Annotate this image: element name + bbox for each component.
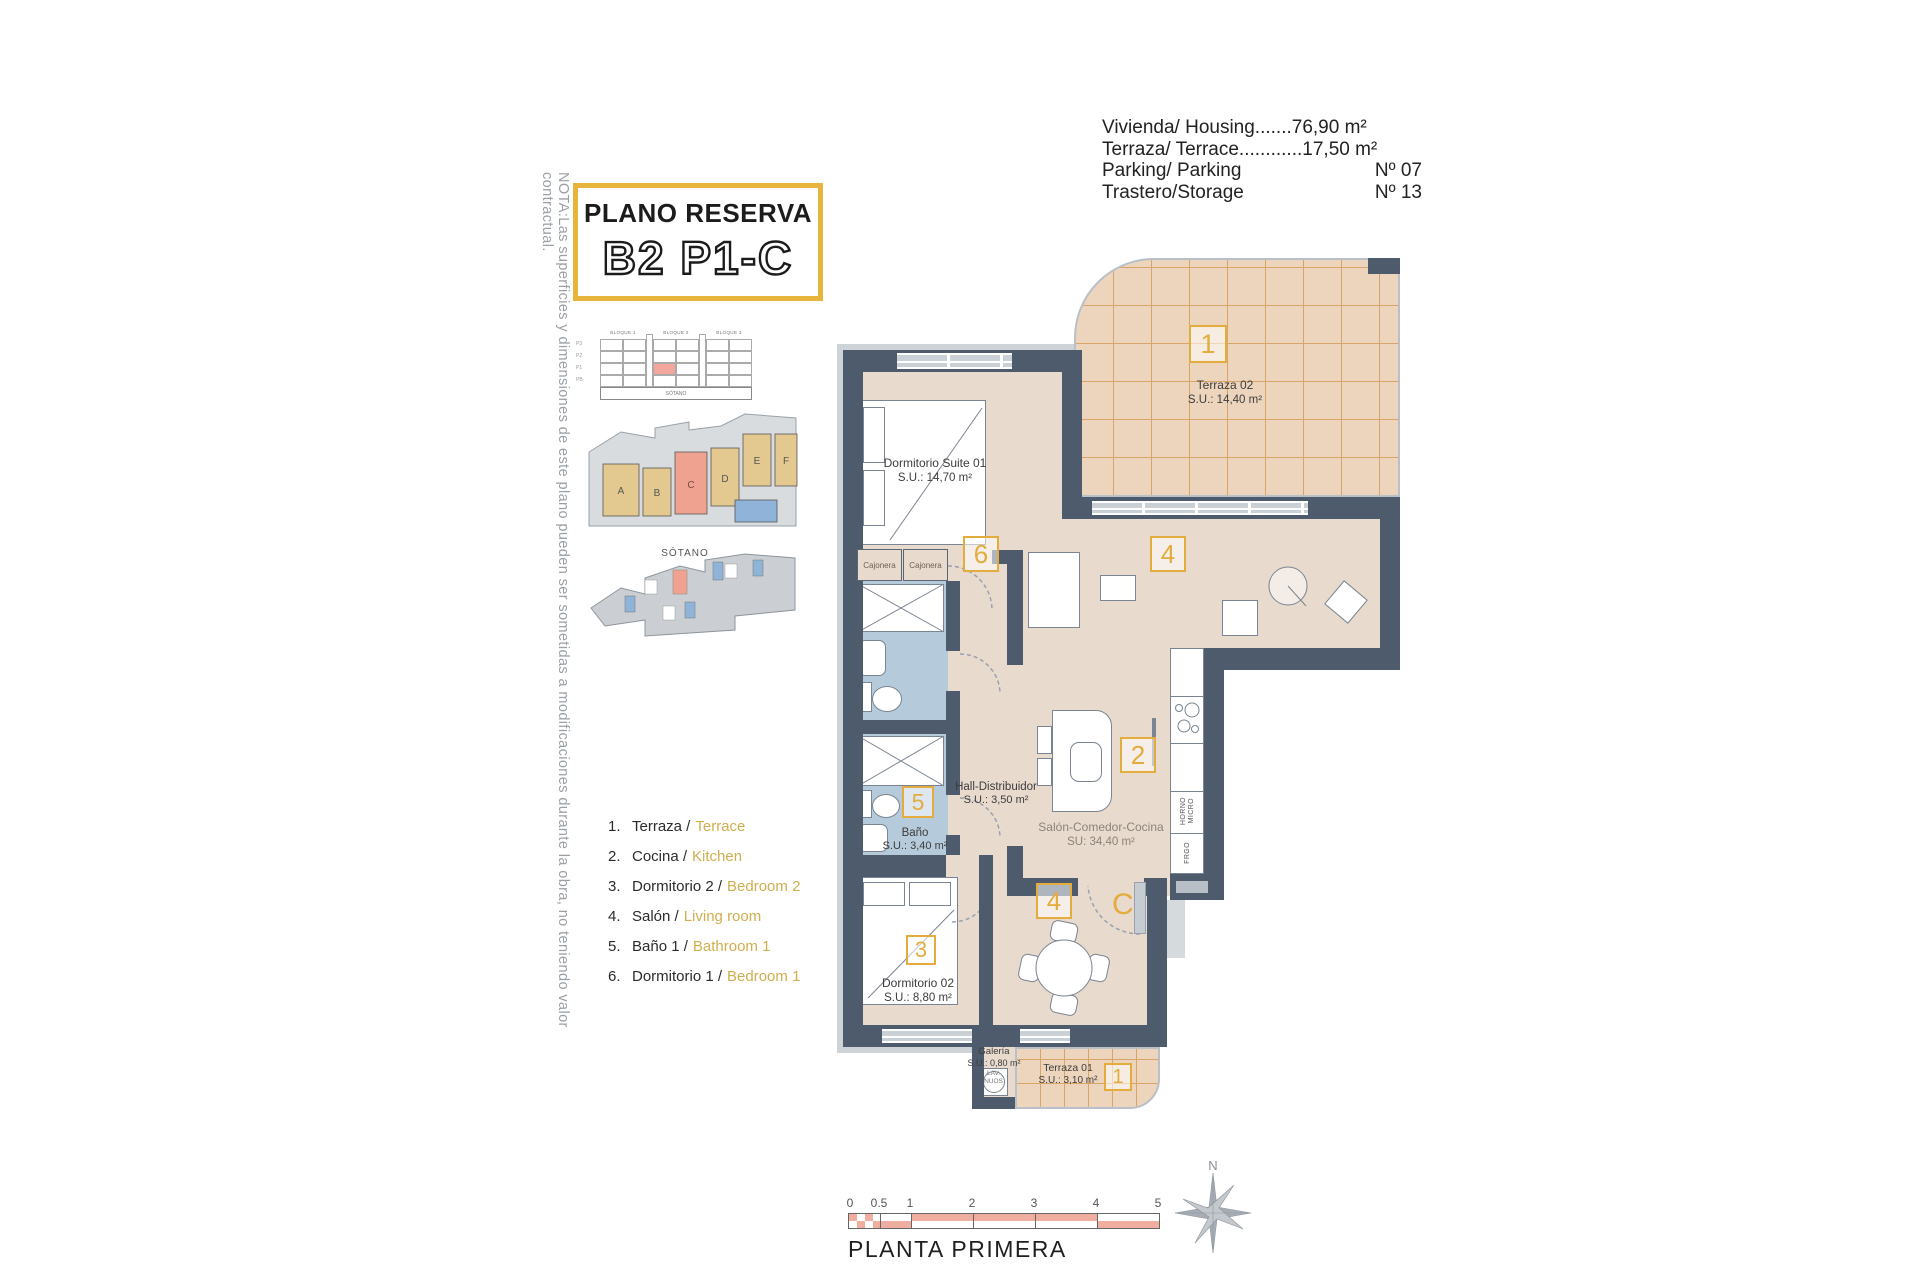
wall-kitchen [1204,648,1224,900]
marker-kitchen: 2 [1120,737,1156,773]
svg-text:E: E [754,456,761,467]
wall-suite-terrace [1062,350,1082,519]
svg-text:C: C [687,480,694,491]
svg-text:A: A [618,486,625,497]
label-dorm02: Dormitorio 02S.U.: 8,80 m² [848,976,988,1005]
wall-left [843,350,863,1047]
window-terrace [1092,501,1308,515]
legend-item-2: 2.Cocina /Kitchen [608,848,808,865]
info-row-storage: Trastero/StorageNº 13 [1102,182,1422,204]
info-row-terrace: Terraza/ Terrace............17,50 m² [1102,139,1422,161]
wall-salon-bottom-right [1224,648,1400,670]
compass-rose: N [1168,1158,1258,1253]
entry-door-letter: C [1112,888,1134,922]
scale-bar: 0 0.5 1 2 3 4 5 PLANTA PRIMERA [848,1196,1162,1266]
coffee-table [1100,575,1136,601]
toilet-1-tank [862,682,872,712]
toilet-2-tank [862,790,872,818]
floor-caption: PLANTA PRIMERA [848,1236,1067,1263]
island-module [1037,726,1052,754]
legend-item-4: 4.Salón /Living room [608,908,808,925]
floor-plan: Cajonera Cajonera HORNOMICRO FRGO 1 6 4 … [840,250,1440,1210]
legend-item-6: 6.Dormitorio 1 /Bedroom 1 [608,968,808,985]
window-dining [1020,1029,1070,1043]
svg-text:D: D [721,474,728,485]
info-row-parking: Parking/ ParkingNº 07 [1102,160,1422,182]
svg-text:F: F [783,456,789,467]
toilet-1-bowl [872,686,902,712]
island-sink [1070,742,1102,782]
bloque1-label: BLOQUE 1 [610,330,635,335]
legend-item-5: 5.Baño 1 /Bathroom 1 [608,938,808,955]
cajonera-box: Cajonera [903,549,948,581]
shower-2 [858,736,944,786]
bloque2-label: BLOQUE 2 [663,330,688,335]
highlighted-unit-cell [653,363,676,375]
floor-plan-sheet: NOTA:Las superficies y dimensiones de es… [0,0,1920,1280]
wall-entry-right [1144,878,1167,896]
dorm02-pillow [909,882,951,906]
legend-item-3: 3.Dormitorio 2 /Bedroom 2 [608,878,808,895]
label-salon: Salón-Comedor-CocinaSU: 34,40 m² [1021,820,1181,849]
info-row-housing: Vivienda/ Housing.......76,90 m² [1102,117,1422,139]
wall-bath-right [946,581,960,651]
label-terraza02: Terraza 02S.U.: 14,40 m² [1155,378,1295,407]
marker-suite: 6 [963,536,999,572]
page-title: PLANO RESERVA [578,198,818,229]
wall-bath-divider [856,720,960,734]
basement-diagram: SÓTANO [585,544,800,642]
site-plan-diagram: A B C D E F [585,412,800,540]
wall-dining-right [1147,896,1167,1025]
label-terraza01: Terraza 01S.U.: 3,10 m² [1008,1062,1128,1088]
marker-salon: 4 [1150,536,1186,572]
side-table [1222,600,1258,636]
title-box: PLANO RESERVA B2 P1-C [573,183,823,301]
wall-terrace-stub [1368,258,1400,274]
entry-landing [1167,900,1185,958]
unit-code: B2 P1-C [578,231,818,285]
window-dorm02 [882,1029,972,1043]
legend: 1.Terraza /Terrace 2.Cocina /Kitchen 3.D… [608,818,808,998]
marker-dining: 4 [1036,883,1072,919]
suite-pillow [863,407,885,463]
kitchen-niche [1176,881,1208,893]
wall-hall-stub-upper [1007,550,1023,665]
marker-dorm02: 3 [906,935,936,965]
window-suite [897,353,1012,369]
label-hall: Hall-DistribuidorS.U.: 3,50 m² [926,780,1066,808]
entry-door-leaf [1134,882,1146,934]
shower-1 [858,584,944,632]
wall-galeria-bottom [972,1097,1015,1109]
wall-dorm02-top [856,855,946,877]
wall-right-upper [1380,497,1400,670]
wall-hall-stub-lower [1007,846,1023,896]
label-bano: BañoS.U.: 3,40 m² [865,826,965,854]
north-label: N [1168,1158,1258,1173]
bloque3-label: BLOQUE 3 [716,330,741,335]
highlighted-parking [673,570,687,594]
surface-info-table: Vivienda/ Housing.......76,90 m² Terraza… [1102,117,1422,203]
block-elevation-key: BLOQUE 1 BLOQUE 2 BLOQUE 3 P3 P2 P1 PB S… [576,330,772,408]
compass-star-icon [1171,1173,1255,1253]
svg-text:B: B [654,488,661,499]
toilet-2-bowl [872,794,900,818]
sofa [1028,552,1080,628]
label-suite: Dormitorio Suite 01S.U.: 14,70 m² [865,456,1005,485]
sotano-row: SÓTANO [600,387,752,400]
scale-bar-graphic [848,1213,1160,1229]
marker-terraza02: 1 [1189,325,1227,363]
dorm02-pillow [863,882,905,906]
cajonera-box: Cajonera [857,549,902,581]
legend-item-1: 1.Terraza /Terrace [608,818,808,835]
vertical-note: NOTA:Las superficies y dimensiones de es… [549,172,571,1052]
svg-text:SÓTANO: SÓTANO [661,546,708,559]
label-lavadora: LAV.NUOS [979,1070,1008,1086]
